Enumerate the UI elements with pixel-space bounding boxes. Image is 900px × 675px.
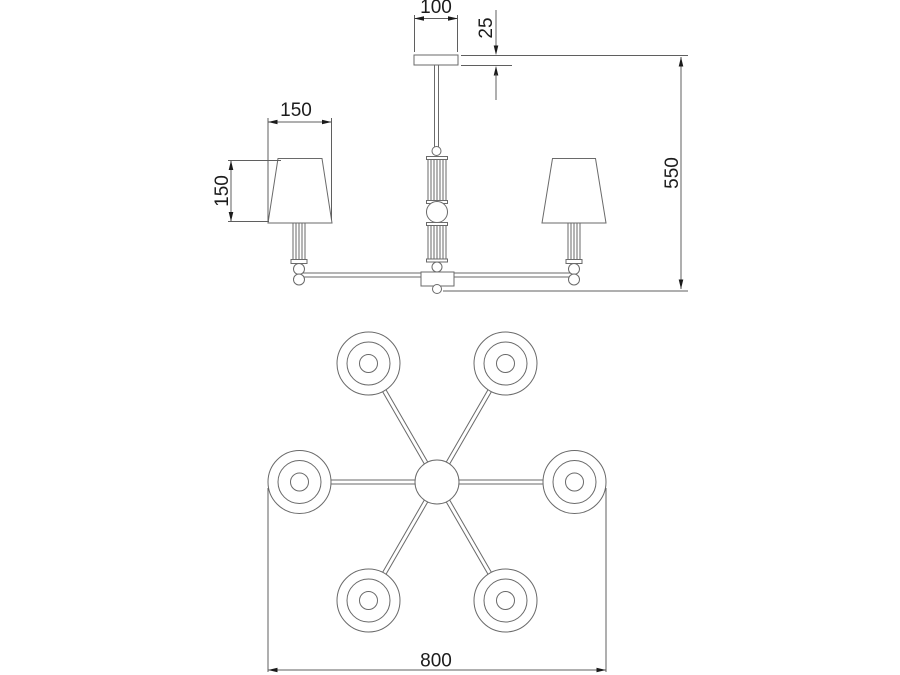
right-stem-cap <box>566 260 582 264</box>
dim-label-canopy-width: 100 <box>420 0 452 18</box>
plan-lamp-left <box>268 451 331 514</box>
plan-arm-bottom-left <box>380 493 428 576</box>
plan-view: 800 <box>268 332 606 672</box>
arrowhead <box>268 668 278 673</box>
plan-lamp-bottom-right <box>474 569 537 632</box>
dim-label-overall-diameter: 800 <box>420 651 452 672</box>
lamp-outer-circle <box>337 569 400 632</box>
left-lamp <box>268 159 332 286</box>
plan-lamp-top-left <box>337 332 400 395</box>
side-view: 100 25 150 150 <box>212 0 688 294</box>
left-lampshade <box>268 159 332 224</box>
dim-label-canopy-height: 25 <box>476 17 497 38</box>
plan-lamp-right <box>543 451 606 514</box>
dim-label-shade-width: 150 <box>280 100 312 121</box>
plan-arm-bottom-left <box>384 495 432 578</box>
drawing-canvas: 100 25 150 150 <box>0 0 900 675</box>
arrowhead <box>494 46 499 56</box>
column-sphere <box>427 202 448 223</box>
plan-lamp-bottom-left <box>337 569 400 632</box>
lamp-outer-circle <box>337 332 400 395</box>
column-ball-bottom <box>433 285 442 294</box>
right-ball-lower <box>569 274 580 285</box>
plan-arm-bottom-right <box>446 493 494 576</box>
plan-lamp-top-right <box>474 332 537 395</box>
arrowhead <box>597 668 607 673</box>
dim-label-overall-height: 550 <box>662 157 683 189</box>
plan-arm-bottom-right <box>442 495 490 578</box>
plan-arm-top-left <box>384 386 432 469</box>
left-ball-lower <box>294 274 305 285</box>
lamp-outer-circle <box>474 569 537 632</box>
arrowhead <box>229 161 234 171</box>
right-ball-upper <box>569 264 580 275</box>
arrowhead <box>679 57 684 67</box>
arrowhead <box>679 280 684 290</box>
center-hub-block <box>421 272 454 286</box>
column-ball-top <box>432 147 441 156</box>
dim-label-shade-height: 150 <box>212 175 233 207</box>
left-ball-upper <box>294 264 305 275</box>
ceiling-canopy <box>414 55 458 147</box>
left-stem-cap <box>291 260 307 264</box>
lamp-outer-circle <box>543 451 606 514</box>
plan-center-hub <box>415 460 459 504</box>
plan-arm-top-right <box>446 388 494 471</box>
plan-arm-top-right <box>442 386 490 469</box>
arrowhead <box>229 212 234 222</box>
canopy-plate <box>414 55 458 65</box>
dim-canopy-height: 25 <box>461 10 688 100</box>
center-column <box>421 147 454 294</box>
technical-drawing: 100 25 150 150 <box>0 0 900 675</box>
arrowhead <box>322 120 332 125</box>
dim-overall-diameter: 800 <box>268 488 606 672</box>
lamp-outer-circle <box>474 332 537 395</box>
dim-canopy-width: 100 <box>414 0 458 52</box>
lamp-outer-circle <box>268 451 331 514</box>
plan-arm-top-left <box>380 388 428 471</box>
column-ball-mid <box>432 262 442 272</box>
right-lamp <box>542 159 606 286</box>
right-lampshade <box>542 159 606 224</box>
arrowhead <box>268 120 278 125</box>
